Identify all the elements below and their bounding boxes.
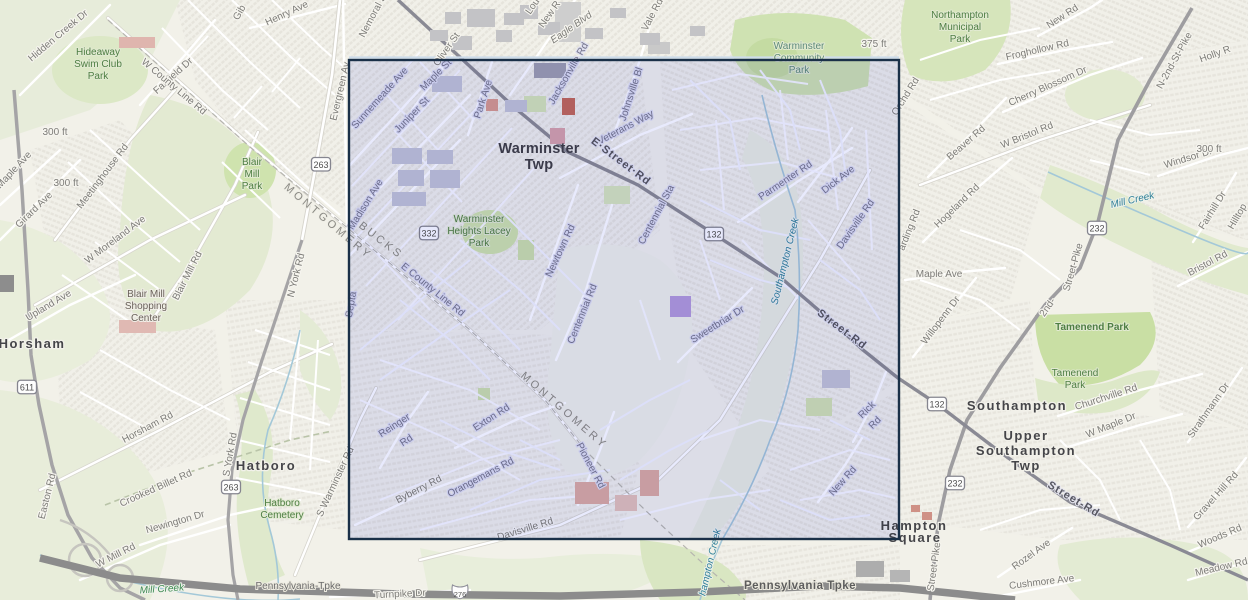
svg-text:Warminster: Warminster (774, 41, 825, 52)
svg-text:232: 232 (1089, 223, 1104, 233)
svg-text:Hatboro: Hatboro (264, 498, 300, 509)
svg-text:Maple Ave: Maple Ave (916, 269, 963, 280)
svg-text:132: 132 (929, 399, 944, 409)
svg-text:Pennsylvania-Tpke: Pennsylvania-Tpke (255, 581, 340, 592)
svg-text:Blair Mill: Blair Mill (127, 289, 165, 300)
svg-text:Tamenend Park: Tamenend Park (1055, 322, 1129, 333)
svg-text:Park: Park (88, 71, 110, 82)
svg-text:Pennsylvania Tpke: Pennsylvania Tpke (744, 580, 856, 592)
svg-text:Park: Park (950, 34, 972, 45)
svg-text:Twp: Twp (1011, 458, 1041, 473)
svg-text:Southampton: Southampton (967, 398, 1067, 413)
svg-text:Horsham: Horsham (0, 336, 65, 351)
svg-text:300 ft: 300 ft (42, 127, 67, 138)
svg-text:Municipal: Municipal (939, 22, 981, 33)
svg-text:Hatboro: Hatboro (236, 458, 296, 473)
svg-text:300 ft: 300 ft (1196, 144, 1221, 155)
svg-text:Tamenend: Tamenend (1052, 368, 1099, 379)
svg-text:300 ft: 300 ft (53, 178, 78, 189)
svg-text:Mill: Mill (245, 169, 260, 180)
svg-text:263: 263 (313, 160, 328, 170)
svg-text:Park: Park (1065, 380, 1087, 391)
svg-text:Hideaway: Hideaway (76, 47, 120, 58)
svg-text:Upper: Upper (1003, 428, 1048, 443)
svg-text:Turnpike Dr: Turnpike Dr (374, 588, 427, 600)
svg-text:611: 611 (20, 382, 34, 392)
svg-text:375 ft: 375 ft (861, 39, 886, 50)
svg-text:Center: Center (131, 313, 162, 324)
svg-text:Park: Park (242, 181, 264, 192)
svg-text:Swim Club: Swim Club (74, 59, 122, 70)
svg-text:Shopping: Shopping (125, 301, 167, 312)
svg-text:Blair: Blair (242, 157, 263, 168)
svg-text:232: 232 (947, 478, 962, 488)
svg-text:263: 263 (223, 482, 238, 492)
svg-text:Southampton: Southampton (976, 443, 1076, 458)
svg-text:Cemetery: Cemetery (260, 510, 303, 521)
svg-text:276: 276 (454, 590, 467, 599)
svg-text:Northampton: Northampton (931, 10, 989, 21)
